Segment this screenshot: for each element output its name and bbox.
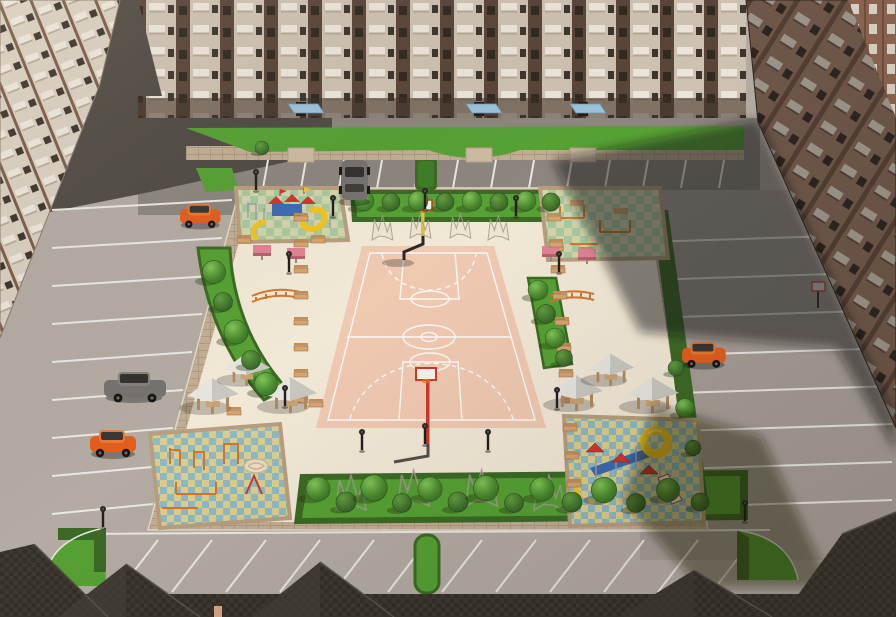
lighting-vignette (0, 0, 896, 617)
render-stage (0, 0, 896, 617)
courtyard-render (0, 0, 896, 617)
